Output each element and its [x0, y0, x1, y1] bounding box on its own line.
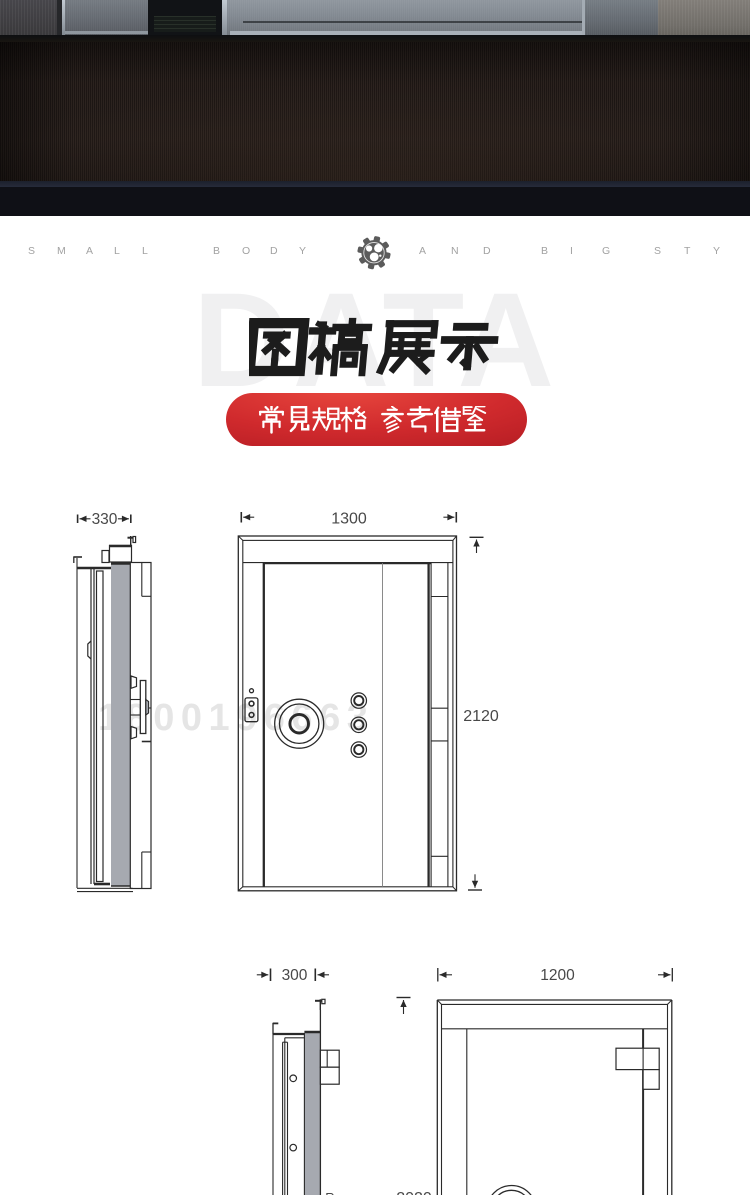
svg-text:R: R: [325, 1190, 334, 1195]
svg-text:1200: 1200: [540, 967, 575, 984]
svg-text:1800196663: 1800196663: [98, 697, 374, 739]
svg-text:2120: 2120: [463, 708, 499, 725]
svg-text:1300: 1300: [331, 511, 367, 528]
svg-text:330: 330: [92, 511, 118, 528]
svg-text:300: 300: [282, 967, 308, 984]
svg-text:2020: 2020: [396, 1190, 432, 1195]
